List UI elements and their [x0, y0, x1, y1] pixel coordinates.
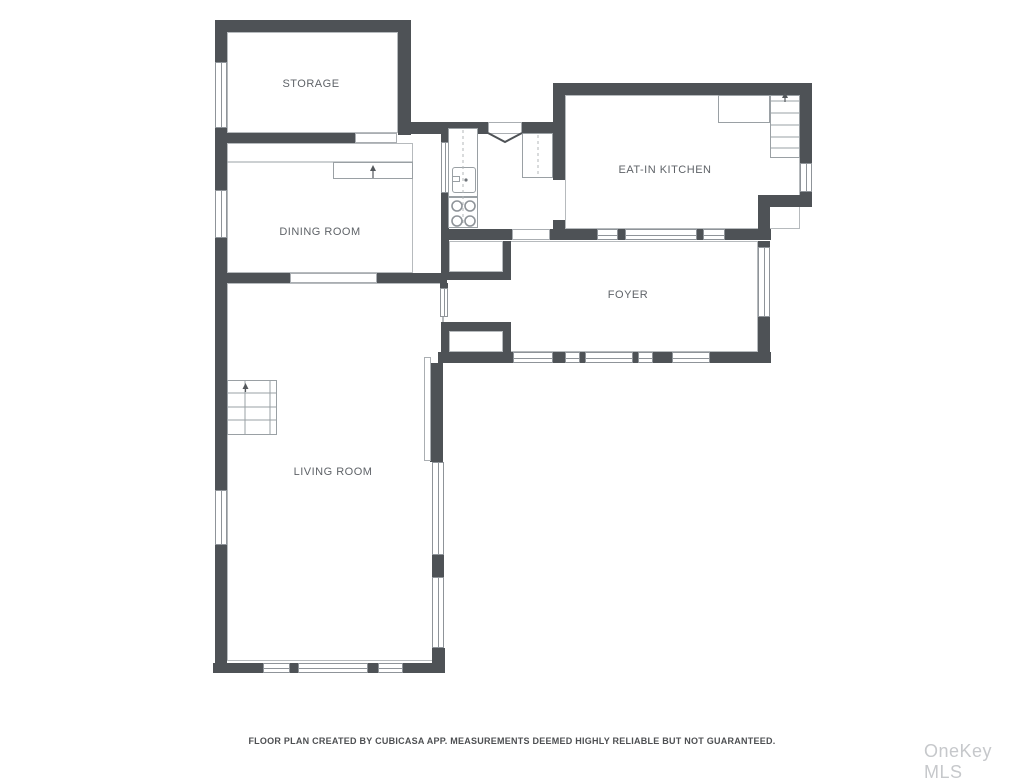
window [263, 663, 290, 673]
stair-landing [718, 95, 770, 123]
wall-segment [758, 207, 770, 231]
wall-segment [290, 663, 298, 673]
wall-segment [503, 241, 511, 272]
room-area-closet-1 [449, 241, 503, 272]
window [215, 62, 227, 128]
floor-plan: STORAGEDINING ROOMEAT-IN KITCHENFOYERLIV… [0, 0, 1024, 768]
door-opening [512, 229, 550, 240]
room-label-storage: STORAGE [282, 78, 339, 90]
window [585, 352, 633, 363]
room-area-closet-2 [449, 331, 503, 352]
wall-segment [758, 195, 812, 207]
wall-segment [430, 363, 443, 462]
wall-segment [213, 663, 263, 673]
disclaimer-text: FLOOR PLAN CREATED BY CUBICASA APP. MEAS… [0, 736, 1024, 746]
window [378, 663, 403, 673]
room-label-living-room: LIVING ROOM [294, 466, 373, 478]
window [703, 229, 725, 240]
wall-segment [550, 229, 597, 240]
window [565, 352, 580, 363]
window [597, 229, 618, 240]
wall-segment [441, 229, 512, 240]
wall-segment [215, 133, 355, 143]
window [513, 352, 553, 363]
wall-segment [403, 663, 445, 673]
room-label-foyer: FOYER [608, 289, 648, 301]
wall-segment [441, 272, 511, 280]
wall-segment [710, 352, 771, 363]
sink-faucet [452, 176, 460, 182]
window [432, 577, 444, 648]
wall-segment [377, 273, 447, 283]
wall-segment [215, 545, 227, 673]
wall-segment [553, 95, 565, 180]
window [758, 247, 770, 317]
wall-segment [725, 229, 771, 240]
wall-segment [441, 331, 449, 363]
kitchen-counter-2 [522, 133, 553, 178]
wall-segment [503, 331, 511, 352]
window [432, 462, 444, 555]
wall-segment [800, 95, 812, 163]
door-opening [290, 273, 377, 283]
window [440, 288, 448, 317]
wall-segment [653, 352, 672, 363]
wall-segment [215, 20, 227, 62]
window [298, 663, 368, 673]
wall-segment [432, 555, 444, 577]
wall-segment [553, 352, 565, 363]
watermark-text: OneKey MLS [924, 741, 1024, 783]
wall-segment [618, 229, 625, 240]
wall-segment [215, 273, 290, 283]
room-label-dining-room: DINING ROOM [279, 226, 360, 238]
stove [448, 197, 478, 228]
wall-segment [215, 20, 411, 32]
wall-segment [368, 663, 378, 673]
window [800, 163, 812, 192]
stairs-living [227, 380, 277, 435]
door-opening [424, 357, 431, 461]
wall-segment [441, 322, 511, 331]
door-opening [488, 122, 522, 134]
window [625, 229, 697, 240]
window [215, 490, 227, 545]
wall-segment [398, 20, 411, 135]
door-opening [355, 133, 397, 143]
wall-segment [438, 352, 513, 363]
window [672, 352, 710, 363]
wall-segment [553, 220, 565, 229]
window [215, 190, 227, 238]
window [638, 352, 653, 363]
wall-segment [553, 83, 812, 95]
dining-step [333, 162, 413, 179]
stairs-kitchen [770, 95, 800, 158]
room-label-eat-in-kitchen: EAT-IN KITCHEN [619, 164, 712, 176]
